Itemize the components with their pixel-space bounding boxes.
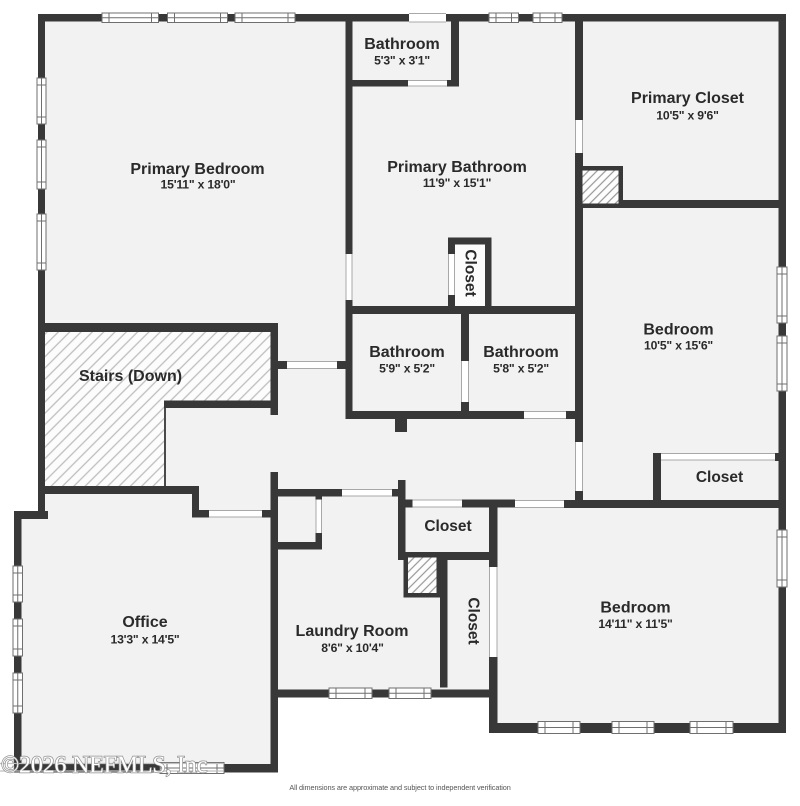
- svg-text:5'9" x 5'2": 5'9" x 5'2": [379, 362, 435, 376]
- svg-text:Laundry Room: Laundry Room: [296, 623, 409, 640]
- svg-text:©2026 NEFMLS, Inc: ©2026 NEFMLS, Inc: [1, 753, 207, 779]
- svg-text:10'5" x 9'6": 10'5" x 9'6": [656, 109, 718, 123]
- svg-text:11'9" x 15'1": 11'9" x 15'1": [423, 176, 491, 190]
- svg-text:5'3" x 3'1": 5'3" x 3'1": [374, 54, 430, 68]
- svg-text:Closet: Closet: [424, 518, 471, 535]
- svg-text:Primary Bathroom: Primary Bathroom: [387, 159, 527, 176]
- svg-text:Primary Closet: Primary Closet: [631, 90, 745, 107]
- svg-text:5'8" x 5'2": 5'8" x 5'2": [493, 362, 549, 376]
- svg-text:Closet: Closet: [696, 469, 743, 486]
- svg-text:All dimensions are approximate: All dimensions are approximate and subje…: [289, 783, 510, 792]
- svg-text:Closet: Closet: [461, 249, 478, 296]
- svg-text:Bathroom: Bathroom: [483, 344, 559, 361]
- svg-text:10'5" x 15'6": 10'5" x 15'6": [644, 339, 713, 353]
- svg-text:Bathroom: Bathroom: [364, 36, 440, 53]
- svg-text:Closet: Closet: [464, 597, 481, 644]
- svg-text:Bathroom: Bathroom: [369, 344, 445, 361]
- svg-text:Bedroom: Bedroom: [600, 600, 670, 617]
- svg-text:Office: Office: [122, 614, 167, 631]
- svg-text:13'3" x 14'5": 13'3" x 14'5": [111, 633, 180, 647]
- svg-text:Bedroom: Bedroom: [643, 322, 713, 339]
- svg-text:8'6" x 10'4": 8'6" x 10'4": [321, 641, 383, 655]
- svg-text:14'11" x 11'5": 14'11" x 11'5": [598, 617, 672, 631]
- svg-text:15'11" x 18'0": 15'11" x 18'0": [161, 178, 236, 192]
- svg-text:Primary Bedroom: Primary Bedroom: [130, 161, 264, 178]
- svg-text:Stairs (Down): Stairs (Down): [79, 368, 182, 385]
